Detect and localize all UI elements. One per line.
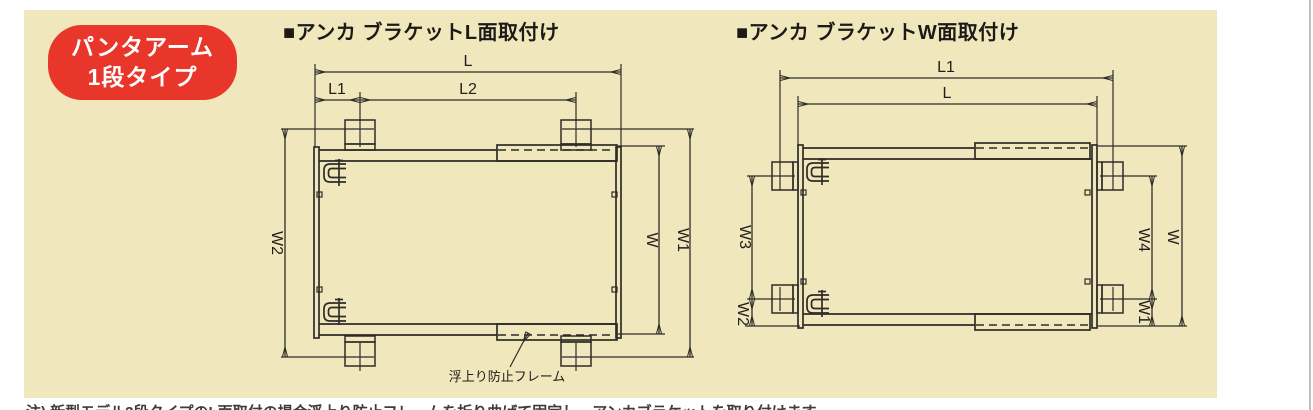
corner-clamp-icon	[324, 159, 346, 186]
anti-lift-frame-bottom	[497, 324, 617, 340]
dim-label-W2: W2	[734, 302, 751, 326]
dim-label-L1: L1	[328, 81, 346, 98]
body-outline	[314, 145, 621, 340]
dimension-lines	[752, 78, 1182, 326]
anti-lift-frame-top	[497, 145, 617, 161]
anti-lift-frame-bottom	[975, 314, 1090, 330]
corner-clamp-icon	[807, 158, 829, 185]
dim-label-L: L	[464, 53, 473, 70]
diagram-drawing: L L1 L2 W2 W W1 浮上り防止フレーム	[0, 0, 1313, 410]
dimension-lines	[285, 72, 690, 357]
dim-label-W1: W1	[674, 228, 691, 252]
page-edge-line	[1309, 0, 1311, 410]
callout-arrow	[510, 333, 528, 367]
corner-clamp-icon	[807, 290, 829, 317]
extension-lines	[745, 70, 1187, 326]
dim-label-W1: W1	[1135, 300, 1152, 324]
left-diagram: L L1 L2 W2 W W1 浮上り防止フレーム	[268, 53, 694, 384]
dim-label-L: L	[943, 85, 952, 102]
right-diagram: L1 L W3 W2 W4 W1 W	[734, 59, 1187, 330]
dim-label-L1: L1	[937, 59, 955, 76]
anti-lift-frame-top	[975, 143, 1090, 159]
catalog-figure: パンタアーム 1段タイプ ■アンカ ブラケットL面取付け ■アンカ ブラケットW…	[0, 0, 1313, 410]
clipped-note-text: 注) 新型モデル2段タイプのL面取付の場合浮上り防止フレームを折り曲げて固定し、…	[26, 401, 830, 410]
dim-label-W: W	[1164, 229, 1181, 245]
corner-clamp-icon	[324, 298, 346, 325]
dim-label-W4: W4	[1135, 228, 1152, 252]
dim-label-L2: L2	[459, 81, 477, 98]
body-outline	[798, 143, 1097, 330]
dim-label-W3: W3	[736, 225, 753, 249]
dim-label-W2: W2	[268, 231, 285, 255]
dim-label-W: W	[643, 232, 660, 248]
callout-label: 浮上り防止フレーム	[449, 369, 566, 384]
extension-lines	[281, 64, 694, 371]
